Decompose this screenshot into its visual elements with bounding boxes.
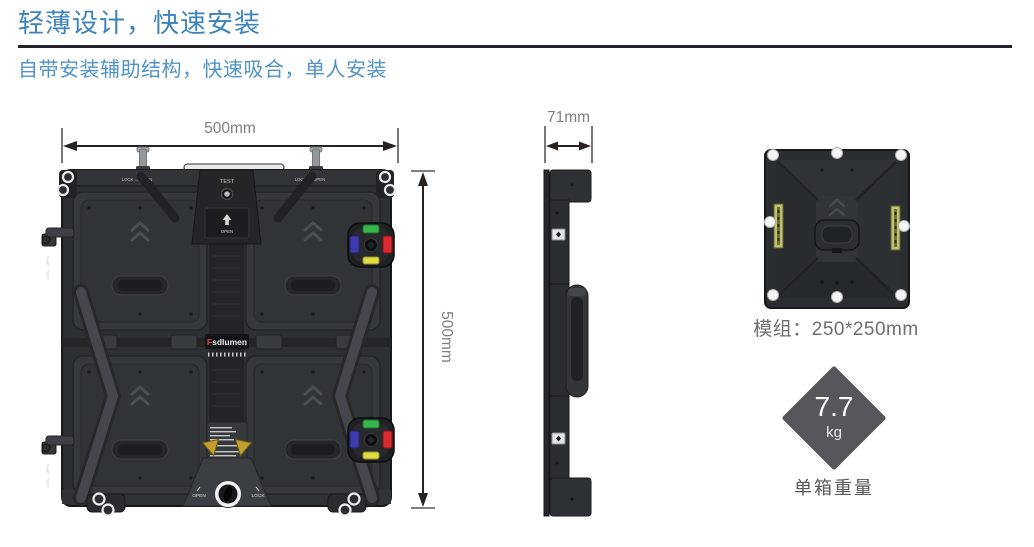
test-button-center [224, 191, 230, 197]
connector-red [383, 431, 392, 448]
front-height-label: 500mm [438, 311, 455, 363]
front-width-label: 500mm [204, 120, 256, 137]
side-latch-mark-bottom [552, 433, 565, 444]
cabinet-back-view-drawing: LOCK ↔ OPEN LOCK ↔ OPEN [41, 146, 400, 522]
arrowhead-bottom-icon [418, 493, 428, 507]
weight-value: 7.7 [815, 391, 854, 422]
connector-blue [350, 236, 359, 253]
arrowhead-top-icon [418, 172, 428, 186]
latch-label-side-bottom: LOCK ↔ OPEN [46, 463, 50, 488]
arrowhead-right-icon [579, 142, 591, 151]
module-caption: 模组：250*250mm [752, 314, 920, 341]
page-subtitle: 自带安装辅助结构，快速吸合，单人安装 [18, 57, 387, 83]
side-latch-mark-top [552, 229, 565, 240]
corner-hook-top-right-icon [376, 170, 395, 198]
side-depth-label: 71mm [547, 109, 590, 126]
connector-blue [350, 431, 359, 448]
foot-bottom-left-icon [87, 494, 125, 516]
title-underline [18, 45, 1012, 48]
signal-connector-bottom [348, 418, 394, 462]
page-title: 轻薄设计，快速安装 [18, 7, 261, 39]
knob-open-label: OPEN [192, 493, 206, 499]
foot-bottom-right-icon [328, 494, 366, 516]
corner-hook-top-left-icon [58, 170, 77, 198]
weight-diamond: 7.7 kg [782, 366, 886, 470]
signal-connector-top [348, 223, 394, 267]
cabinet-side-view-drawing [542, 163, 600, 523]
latch-label-side-top: LOCK ↔ OPEN [46, 255, 50, 280]
test-open-panel: TEST OPEN [192, 170, 261, 244]
test-label: TEST [220, 179, 235, 185]
weight-caption: 单箱重量 [784, 474, 884, 500]
connector-yellow [363, 452, 379, 459]
module-connector-strip-left [774, 204, 783, 248]
connector-yellow [363, 257, 379, 264]
knob-lock-label: LOCK [251, 493, 265, 499]
module-drawing [762, 144, 912, 312]
connector-green [363, 225, 379, 233]
arrowhead-left-icon [546, 142, 558, 151]
connector-red [383, 236, 392, 253]
connector-green [363, 420, 379, 428]
front-height-dimension: 500mm [406, 163, 460, 515]
panel-face-strip [544, 170, 549, 516]
spec-page: 轻薄设计，快速安装 自带安装辅助结构，快速吸合，单人安装 500mm 500mm [0, 0, 1034, 547]
side-depth-dimension: 71mm [536, 106, 602, 168]
brand-rest: sdlumen [212, 337, 247, 347]
weight-unit: kg [826, 424, 842, 441]
module-handle [815, 220, 859, 253]
open-hatch-label: OPEN [221, 229, 233, 234]
brand-logo-text: Fsdlumen [207, 337, 247, 347]
